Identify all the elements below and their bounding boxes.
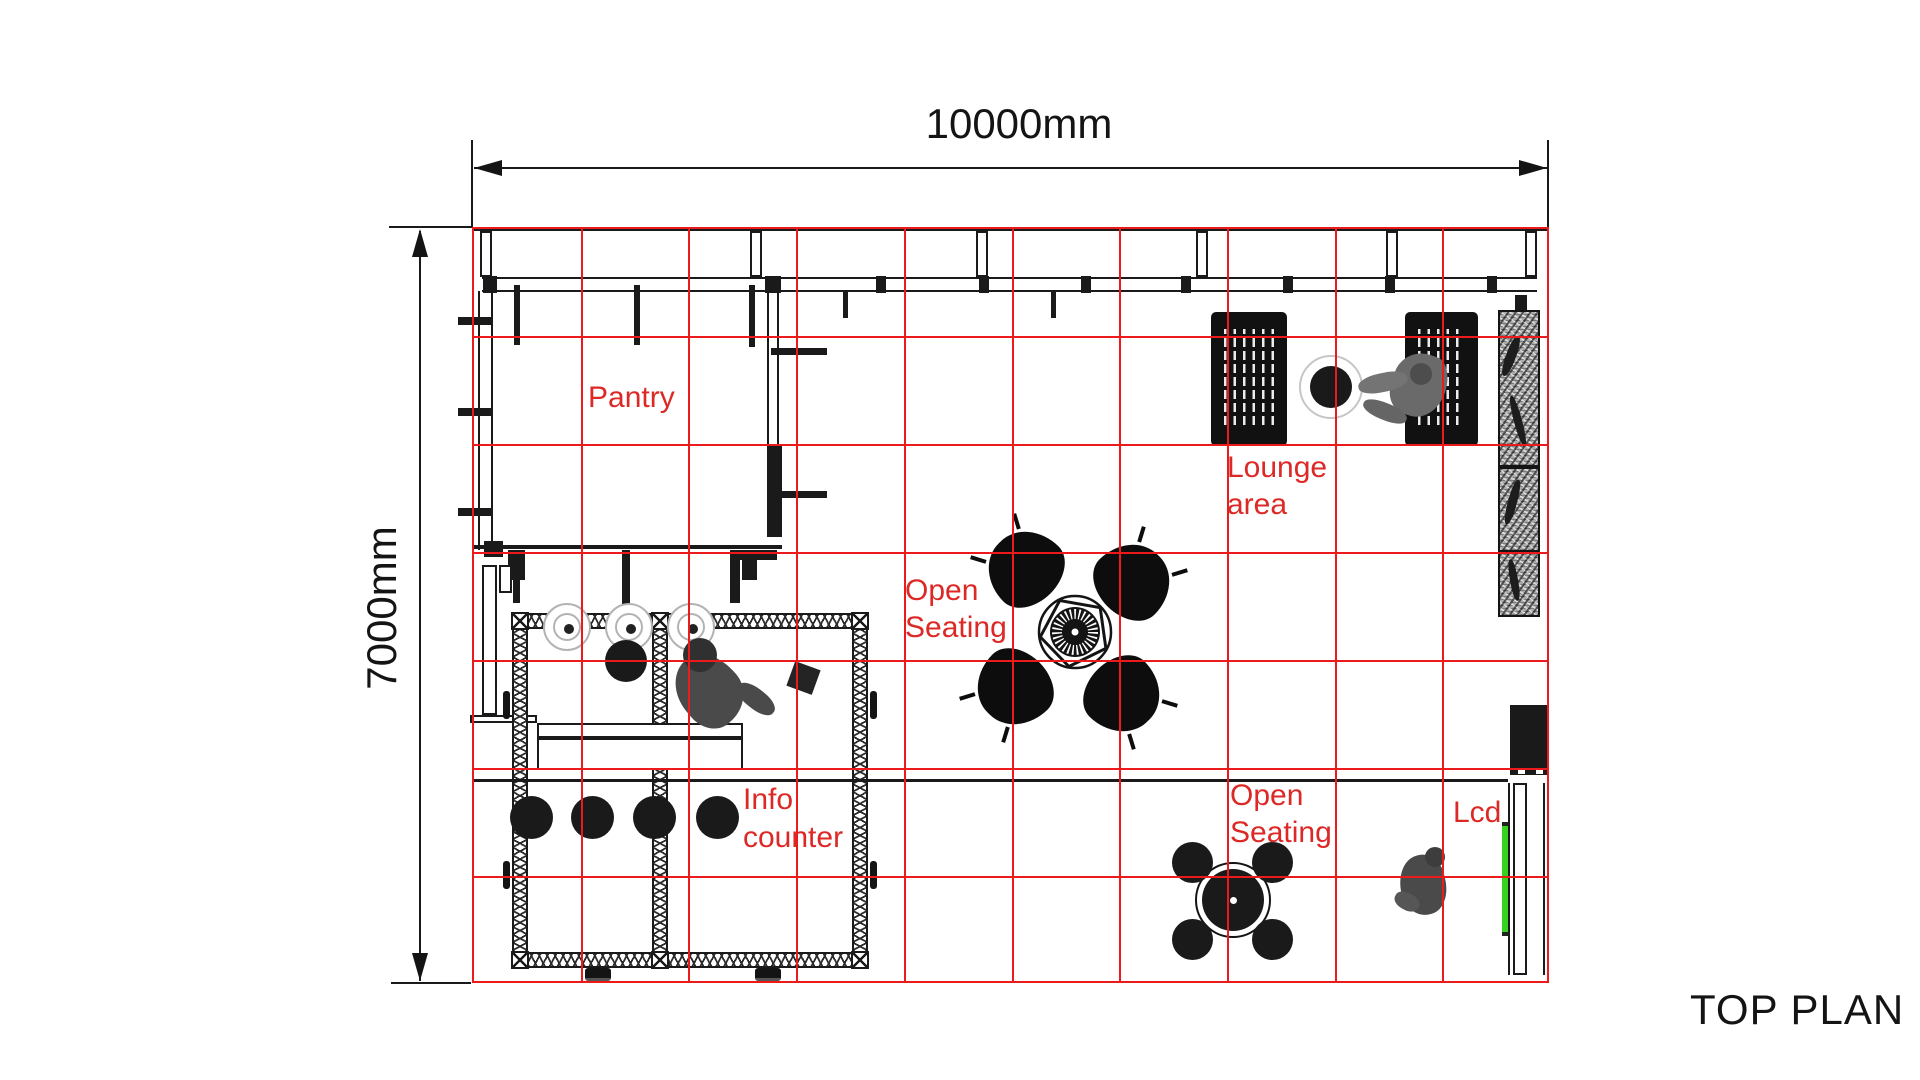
extension-line [1547,140,1549,228]
sofa-slats [1224,329,1274,429]
round-table [1036,593,1114,671]
extension-line [389,226,471,228]
beam-connector [1487,276,1497,293]
wall-tick [458,408,492,416]
truss-left [512,613,528,968]
door-hinge [870,691,877,719]
beam-connector [1385,276,1395,293]
spotlight-dot [626,624,636,634]
info-counter-line1: Info [743,781,843,819]
floor-plan-canvas: 10000mm 7000mm [0,0,1920,1080]
open-seating-center-label: OpenSeating [905,572,1007,646]
wall-post [737,550,777,560]
wall-post [1525,231,1537,277]
vertical-dimension-line [419,231,421,981]
column-tick [1051,292,1056,318]
lounge-label-line2: area [1227,486,1327,523]
extension-line [471,140,473,228]
lcd-screen [1502,826,1508,932]
spotlight-dot [564,624,574,634]
column-tick [843,292,848,318]
column-tick [514,285,520,345]
beam-connector [1181,276,1191,293]
truss-node [651,951,669,969]
door-hinge [503,861,510,889]
horizontal-dimension-label: 10000mm [869,100,1169,148]
stool [605,640,647,682]
storage-cabinet [482,565,497,715]
stool [571,796,614,839]
chair-leg [1001,726,1010,742]
grid-line-horizontal [474,876,1547,878]
stool [1172,919,1213,960]
chair-leg [1012,513,1021,529]
open-seating-line2: Seating [1230,814,1332,851]
truss-right [852,613,868,968]
wall-tick [458,508,492,516]
extension-line [391,982,471,984]
chair-leg [1137,526,1146,542]
truss-foot [755,968,781,981]
column-tick [634,285,640,345]
info-counter-line2: counter [743,819,843,857]
wall-post [976,231,988,277]
beam-connector [483,276,497,293]
lounge-area-label: Loungearea [1227,449,1327,523]
horizontal-dimension-line [474,167,1547,169]
pantry-label: Pantry [588,379,675,416]
truss-node [511,951,529,969]
pantry-corner [484,541,503,557]
dimension-arrow-left-icon [474,160,502,176]
cabinet-notch [1536,768,1543,774]
open-seating-line1: Open [1230,777,1332,814]
cabinet-notch [1518,768,1525,774]
stool [1172,842,1213,883]
pantry-right-wall [767,293,769,445]
stool [696,796,739,839]
chair-leg [1161,699,1177,708]
top-wall-beam [482,277,1537,292]
beam-connector [876,276,886,293]
lounge-label-line1: Lounge [1227,449,1327,486]
beam-connector [1081,276,1091,293]
booth-plan: Pantry Loungearea OpenSeating Infocounte… [472,227,1549,983]
dimension-arrow-up-icon [412,229,428,257]
grid-line-horizontal [474,444,1547,446]
media-cabinet [1510,705,1548,775]
door-hinge [870,861,877,889]
info-counter-label: Infocounter [743,781,843,857]
wall-post [513,580,520,603]
truss-bottom [512,952,868,968]
wall-post [480,231,492,277]
grid-line-vertical [796,229,798,981]
lcd-cap [1502,932,1508,936]
platform-edge-line [472,779,1508,782]
dimension-arrow-right-icon [1519,160,1547,176]
truss-foot [585,968,611,981]
table-center-dot [1230,897,1237,904]
chair-leg [959,692,975,701]
lounge-sofa [1211,312,1287,446]
person-head [1425,847,1445,867]
person-head [683,638,717,672]
stool [510,796,553,839]
person-head [1410,363,1432,385]
spotlight-icon [543,603,591,651]
chair-leg [1171,568,1187,577]
pantry-bottom-wall [472,545,782,549]
pantry-right-wall [777,293,779,445]
greenery-wall-segment [1498,310,1540,467]
wall-tick [775,491,827,498]
right-wall-line [1543,783,1545,975]
wall-post [622,550,630,605]
grid-line-vertical [581,229,583,981]
chair-leg [1127,733,1136,749]
vertical-dimension-label: 7000mm [358,458,410,758]
right-wall-panel [1513,783,1527,975]
wall-tick [771,348,827,355]
truss-node [851,612,869,630]
wall-post [742,560,757,580]
bag [786,661,820,695]
greenery-wall-segment [1498,552,1540,617]
open-seating-right-label: OpenSeating [1230,777,1332,851]
grid-line-vertical [1335,229,1337,981]
open-seating-line1: Open [905,572,1007,609]
open-seating-line2: Seating [905,609,1007,646]
truss-middle [652,613,668,968]
beam-connector [765,276,781,293]
dimension-arrow-down-icon [412,953,428,981]
wall-post [1386,231,1398,277]
right-wall-line [1508,783,1510,975]
stool [633,796,676,839]
wall-tick [458,317,492,325]
truss-node [511,612,529,630]
spotlight-dot [688,624,698,634]
page-title: TOP PLAN [1690,986,1904,1034]
door-hinge [503,691,510,719]
truss-node [851,951,869,969]
storage-cabinet [499,565,512,593]
lcd-label: Lcd [1453,794,1501,831]
wall-post [1196,231,1208,277]
column-tick [749,285,755,347]
info-counter-body [537,738,743,770]
side-table [1310,366,1352,408]
chair-leg [970,555,986,564]
beam-connector [979,276,989,293]
stool [1252,919,1293,960]
wall-post [750,231,762,277]
beam-connector [1283,276,1293,293]
